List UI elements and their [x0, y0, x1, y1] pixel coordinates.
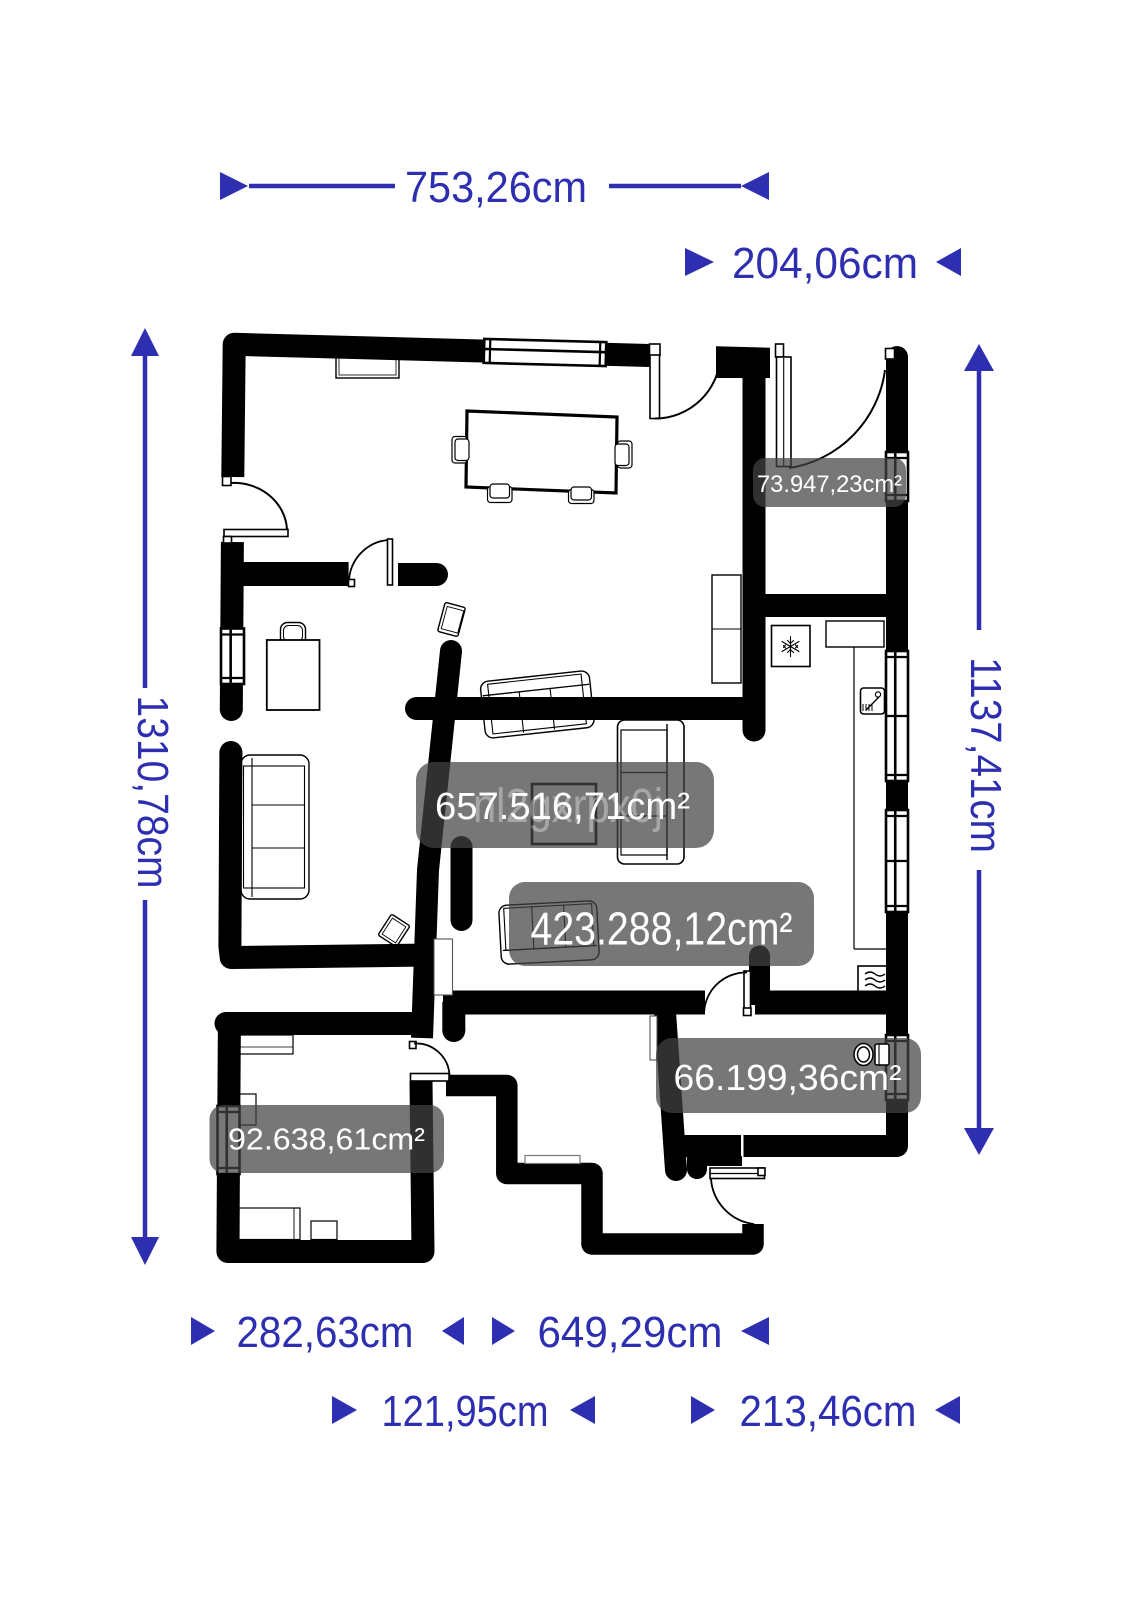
svg-text:1137,41cm: 1137,41cm — [961, 657, 1010, 853]
svg-text:423.288,12cm²: 423.288,12cm² — [531, 903, 793, 955]
svg-text:92.638,61cm²: 92.638,61cm² — [228, 1122, 425, 1157]
svg-text:649,29cm: 649,29cm — [538, 1308, 723, 1357]
svg-text:213,46cm: 213,46cm — [740, 1387, 917, 1436]
svg-text:73.947,23cm²: 73.947,23cm² — [757, 471, 902, 498]
svg-text:66.199,36cm²: 66.199,36cm² — [674, 1058, 902, 1098]
svg-text:1310,78cm: 1310,78cm — [128, 696, 177, 889]
svg-text:121,95cm: 121,95cm — [382, 1387, 549, 1436]
svg-text:657.516,71cm²: 657.516,71cm² — [435, 785, 690, 828]
svg-text:204,06cm: 204,06cm — [732, 239, 918, 288]
svg-text:753,26cm: 753,26cm — [405, 163, 587, 212]
svg-text:282,63cm: 282,63cm — [237, 1308, 414, 1357]
